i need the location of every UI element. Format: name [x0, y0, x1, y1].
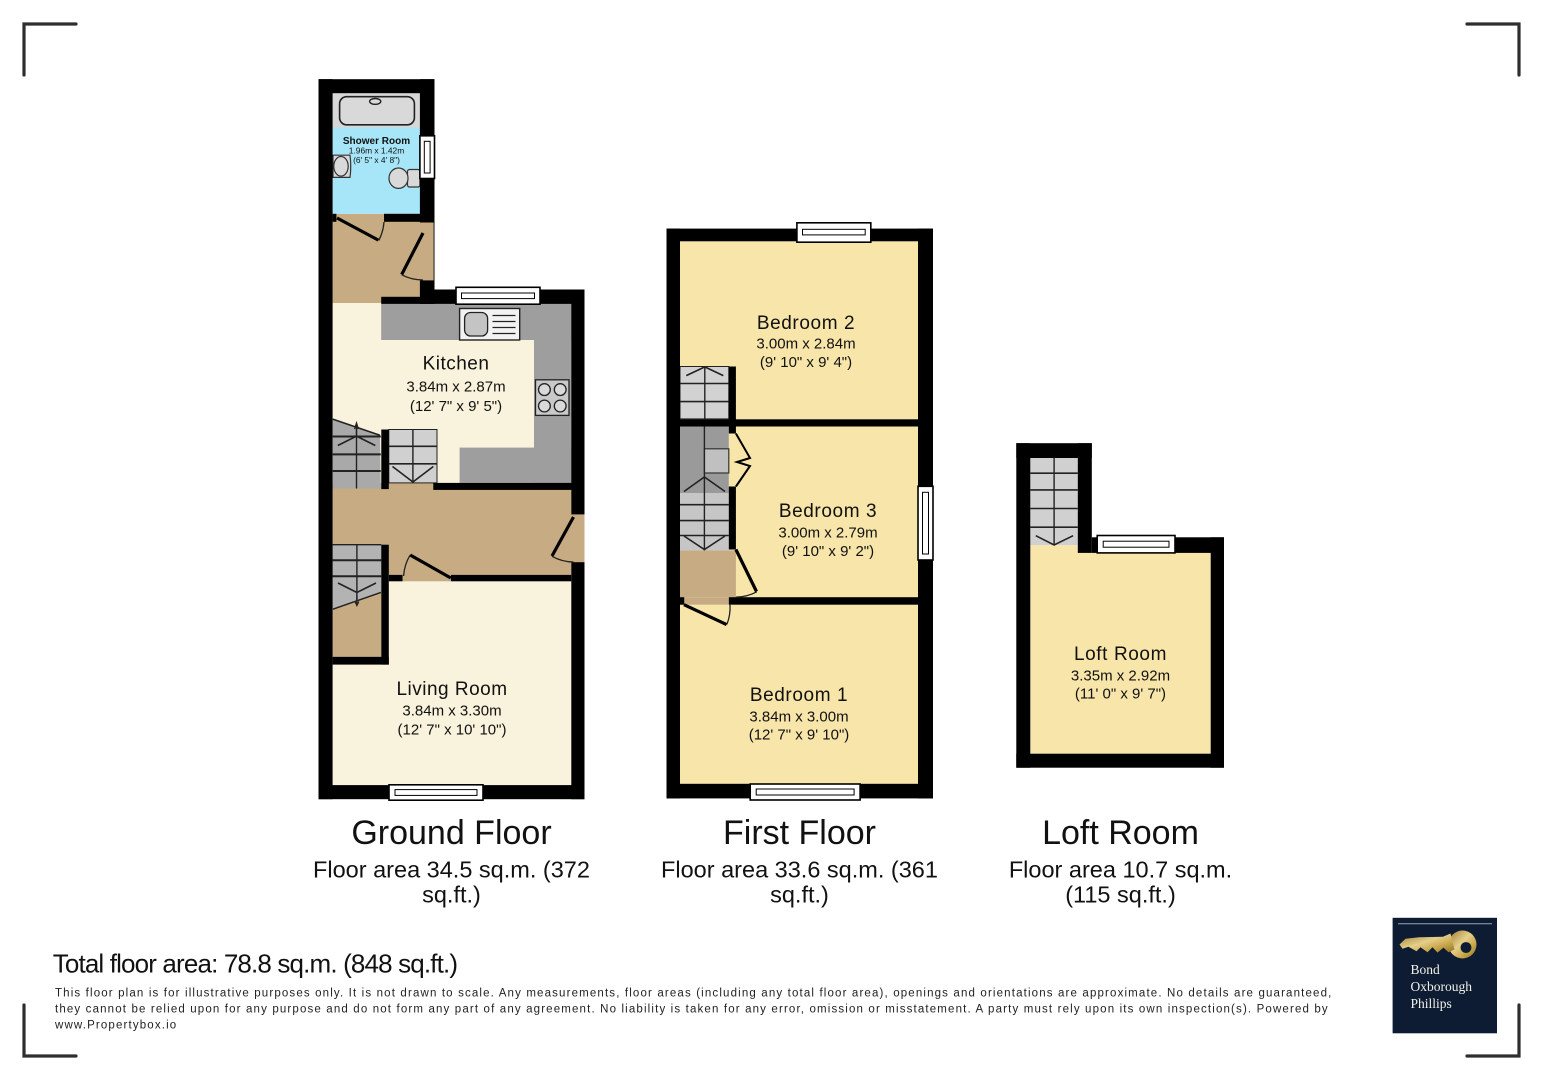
svg-text:Bedroom 3: Bedroom 3	[779, 501, 877, 522]
svg-text:3.00m x 2.79m: 3.00m x 2.79m	[778, 525, 877, 542]
svg-text:(9' 10" x 9' 4"): (9' 10" x 9' 4")	[760, 354, 852, 371]
svg-text:sq.ft.): sq.ft.)	[770, 882, 829, 908]
svg-text:This floor plan is for illustr: This floor plan is for illustrative purp…	[55, 988, 1332, 1000]
svg-text:3.84m x 2.87m: 3.84m x 2.87m	[406, 379, 505, 396]
svg-text:Loft Room: Loft Room	[1074, 644, 1167, 665]
svg-text:www.Propertybox.io: www.Propertybox.io	[54, 1019, 177, 1031]
svg-text:Phillips: Phillips	[1411, 996, 1452, 1011]
svg-text:3.84m x 3.00m: 3.84m x 3.00m	[749, 709, 848, 726]
svg-text:(12' 7" x 9' 10"): (12' 7" x 9' 10")	[749, 727, 850, 744]
svg-text:(11' 0" x 9' 7"): (11' 0" x 9' 7")	[1075, 686, 1166, 703]
svg-text:they cannot be relied upon for: they cannot be relied upon for any purpo…	[55, 1003, 1329, 1015]
svg-text:Bedroom 1: Bedroom 1	[750, 685, 848, 706]
svg-text:Floor area 10.7 sq.m.: Floor area 10.7 sq.m.	[1009, 857, 1232, 883]
svg-text:(9' 10" x 9' 2"): (9' 10" x 9' 2")	[782, 543, 874, 560]
svg-text:Total floor area: 78.8 sq.m. (: Total floor area: 78.8 sq.m. (848 sq.ft.…	[53, 949, 458, 979]
svg-text:(12' 7" x 9' 5"): (12' 7" x 9' 5")	[410, 398, 502, 415]
svg-text:Floor area 33.6 sq.m. (361: Floor area 33.6 sq.m. (361	[661, 857, 938, 883]
svg-text:3.84m x 3.30m: 3.84m x 3.30m	[402, 703, 501, 720]
svg-text:Floor area 34.5 sq.m. (372: Floor area 34.5 sq.m. (372	[313, 857, 590, 883]
svg-text:Ground Floor: Ground Floor	[351, 814, 551, 852]
svg-text:Bedroom 2: Bedroom 2	[757, 313, 855, 334]
svg-text:Oxborough: Oxborough	[1411, 979, 1473, 994]
svg-text:Bond: Bond	[1411, 962, 1441, 977]
svg-text:(6' 5" x 4' 8"): (6' 5" x 4' 8")	[353, 155, 400, 165]
svg-text:3.00m x 2.84m: 3.00m x 2.84m	[756, 336, 855, 353]
svg-text:3.35m x 2.92m: 3.35m x 2.92m	[1071, 668, 1170, 685]
svg-text:(12' 7" x 10' 10"): (12' 7" x 10' 10")	[398, 722, 507, 739]
svg-text:Loft Room: Loft Room	[1042, 814, 1199, 852]
svg-text:Kitchen: Kitchen	[423, 354, 490, 375]
svg-text:sq.ft.): sq.ft.)	[422, 882, 481, 908]
svg-text:Living Room: Living Room	[396, 679, 507, 700]
svg-text:First Floor: First Floor	[723, 814, 876, 852]
svg-text:(115 sq.ft.): (115 sq.ft.)	[1065, 882, 1176, 908]
